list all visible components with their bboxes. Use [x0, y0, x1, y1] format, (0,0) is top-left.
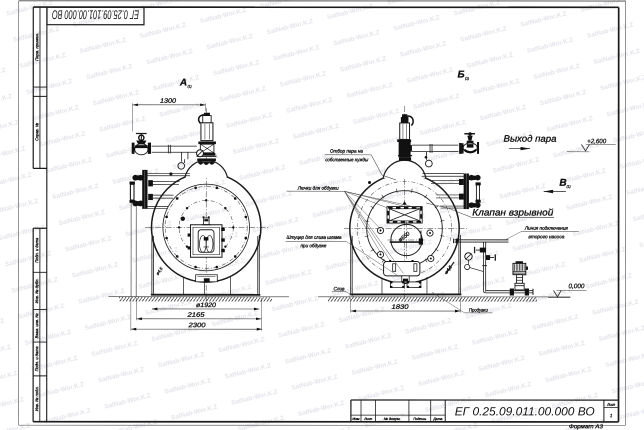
- svg-text:Лючки для обдувки: Лючки для обдувки: [297, 186, 339, 192]
- svg-text:Формат А3: Формат А3: [569, 424, 604, 430]
- svg-text:ЕГ 0.25.09.101.00.000 ВО: ЕГ 0.25.09.101.00.000 ВО: [52, 7, 139, 21]
- svg-text:2300: 2300: [187, 322, 206, 329]
- svg-text:1300: 1300: [160, 98, 177, 105]
- svg-text:Изм: Изм: [352, 417, 360, 421]
- svg-text:1830: 1830: [391, 304, 409, 311]
- svg-text:Линия подключения: Линия подключения: [524, 226, 568, 232]
- svg-text:0,000: 0,000: [568, 283, 584, 290]
- svg-text:(1): (1): [465, 77, 469, 81]
- svg-text:(1): (1): [187, 84, 191, 88]
- svg-text:при обдувке: при обдувке: [300, 243, 326, 249]
- svg-text:(1): (1): [567, 185, 571, 189]
- svg-text:Штуцер для слива шлама: Штуцер для слива шлама: [286, 235, 341, 241]
- svg-text:Дата: Дата: [432, 417, 442, 421]
- svg-text:№ докум.: № докум.: [384, 417, 401, 421]
- svg-text:Отбор пара на: Отбор пара на: [330, 149, 363, 155]
- svg-text:Б: Б: [458, 70, 465, 81]
- svg-text:Инв. № подл.: Инв. № подл.: [34, 386, 39, 411]
- svg-text:Подп. и дата: Подп. и дата: [34, 237, 39, 263]
- svg-text:собственные нужды: собственные нужды: [325, 157, 368, 163]
- svg-text:1: 1: [610, 413, 613, 418]
- svg-text:Клапан взрывной: Клапан взрывной: [472, 206, 554, 217]
- svg-text:ø1920: ø1920: [196, 302, 216, 309]
- svg-text:А: А: [179, 77, 187, 88]
- svg-text:Перв. примен.: Перв. примен.: [34, 33, 39, 61]
- svg-text:Подпись: Подпись: [413, 417, 426, 421]
- svg-text:ЕГ 0.25.09.011.00.000 ВО: ЕГ 0.25.09.011.00.000 ВО: [455, 404, 595, 418]
- svg-text:Инв. № дубл.: Инв. № дубл.: [34, 278, 39, 303]
- svg-text:Лист: Лист: [606, 403, 615, 407]
- svg-text:Взам. инв. №: Взам. инв. №: [34, 313, 39, 339]
- svg-text:Лист: Лист: [363, 417, 372, 421]
- svg-text:Подп. и дата: Подп. и дата: [34, 346, 39, 372]
- svg-text:2165: 2165: [186, 312, 205, 319]
- svg-text:второго насоса: второго насоса: [528, 235, 564, 240]
- svg-text:Выход пара: Выход пара: [504, 134, 557, 144]
- svg-text:Справ. №: Справ. №: [34, 122, 39, 141]
